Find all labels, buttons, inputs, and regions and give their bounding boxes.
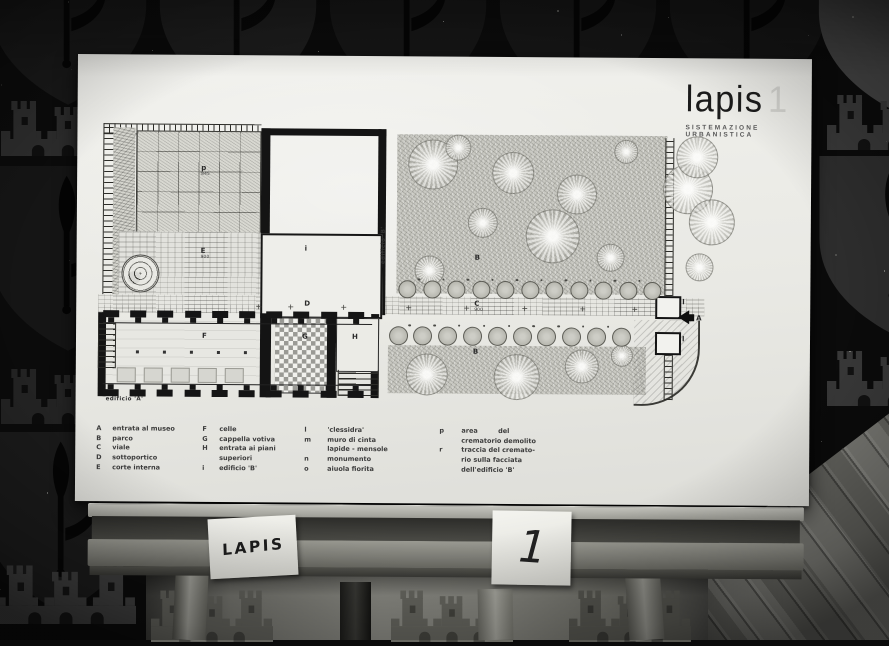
legend-text: aiuola fiorita	[327, 465, 414, 475]
flowerbed-dot	[607, 325, 609, 327]
survey-tick	[341, 305, 346, 310]
legend-column: parea del crematorio demolitortraccia de…	[439, 427, 549, 476]
lapis-card-text: LAPIS	[222, 535, 285, 560]
tree-icon	[643, 282, 661, 300]
legend-key: F	[202, 425, 207, 435]
legend-entry: mmuro di cinta lapide - mensole	[304, 435, 414, 455]
flowerbed-dot	[433, 324, 435, 326]
legend-text: celle	[219, 425, 312, 435]
plan-label-key: E	[201, 247, 206, 255]
tree-icon	[596, 244, 624, 272]
pilaster	[266, 390, 282, 397]
tree-icon	[438, 326, 457, 345]
wallpaper-castle-icon	[827, 344, 889, 406]
legend-entry: parea del crematorio demolito	[439, 427, 549, 447]
presentation-board: lapis1 SISTEMAZIONE URBANISTICA	[75, 54, 812, 506]
site-plan: edificio 'A' edificio 'B' p845E900iDFGHB…	[75, 54, 812, 506]
tree-icon	[689, 199, 735, 245]
pilaster	[321, 312, 337, 319]
legend-entry: rtraccia del cremato- rio sulla facciata…	[439, 446, 549, 476]
pilaster	[320, 391, 336, 398]
legend-key: o	[304, 464, 309, 474]
legend-key: D	[96, 453, 101, 463]
pilaster	[266, 311, 282, 318]
flowerbed-dot	[532, 325, 534, 327]
tree-icon	[521, 281, 539, 299]
legend-key: C	[96, 444, 101, 454]
plan-label-key: l	[682, 335, 684, 343]
tree-icon	[468, 208, 498, 238]
plan-label: F	[202, 333, 207, 340]
tree-icon	[565, 349, 599, 383]
tree-icon	[447, 281, 465, 299]
column-dot	[244, 351, 247, 354]
plan-label-elevation: 845	[201, 172, 210, 176]
tree-icon	[570, 281, 588, 299]
tree-icon	[398, 280, 416, 298]
speckle	[668, 17, 669, 18]
plan-wall-top	[261, 128, 386, 136]
legend-text: entrata al museo	[112, 424, 206, 434]
plan-label-key: i	[305, 245, 307, 253]
cell-door	[198, 368, 217, 383]
pilaster-row	[103, 383, 372, 398]
tree-icon	[413, 326, 432, 345]
legend-text: area del crematorio demolito	[461, 427, 549, 447]
pilaster-row	[103, 310, 372, 325]
plan-label: B	[473, 349, 478, 356]
plan-label: G	[302, 334, 308, 341]
tree-icon	[494, 354, 540, 400]
legend-key: E	[96, 463, 101, 473]
tree-icon	[562, 327, 581, 346]
legend-column: l'clessidra'mmuro di cinta lapide - mens…	[304, 426, 414, 475]
tree-icon	[612, 327, 631, 346]
tree-icon	[406, 353, 448, 395]
survey-tick	[464, 306, 469, 311]
easel-left-leg	[172, 569, 209, 641]
wallpaper-castle-icon	[827, 88, 889, 150]
easel-tray	[88, 500, 804, 582]
tree-icon	[685, 253, 713, 281]
edificio-b-caption: edificio 'B'	[381, 227, 387, 265]
legend-key: p	[439, 427, 444, 437]
legend-text: viale	[112, 444, 206, 454]
legend-key: i	[202, 464, 204, 474]
legend-key: l	[304, 426, 306, 436]
legend-text: edificio 'B'	[219, 464, 312, 474]
tree-icon	[492, 152, 534, 194]
plan-label: H	[352, 334, 358, 341]
plan-label-key: F	[202, 332, 207, 340]
tree-icon	[472, 281, 490, 299]
tree-icon	[463, 326, 482, 345]
plan-label: l	[682, 336, 684, 343]
tree-icon	[496, 281, 514, 299]
plan-clessidra-lower	[655, 332, 681, 355]
legend-column: Aentrata al museoBparcoCvialeDsottoporti…	[96, 424, 206, 473]
flowerbed-dot	[483, 324, 485, 326]
legend-text: sottoportico	[112, 453, 206, 463]
pilaster	[212, 311, 228, 318]
flowerbed-dot	[508, 325, 510, 327]
plan-label-key: B	[475, 254, 480, 262]
pilaster	[130, 389, 146, 396]
tree-icon	[614, 140, 638, 164]
speckle	[152, 50, 153, 51]
cell-door	[117, 367, 136, 382]
legend-text: corte interna	[112, 463, 206, 473]
tree-icon	[526, 209, 580, 263]
survey-tick	[256, 304, 261, 309]
tree-icon	[537, 327, 556, 346]
plan-crematorium-area	[136, 130, 262, 234]
legend-entry: iedificio 'B'	[202, 464, 312, 474]
wallpaper-shield-icon	[813, 156, 889, 338]
plan-label: p845	[201, 165, 210, 177]
speckle	[849, 351, 851, 353]
column-dot	[163, 351, 166, 354]
plan-room-h	[336, 318, 379, 372]
legend-entry: oaiuola fiorita	[304, 464, 414, 474]
plan-label-key: C	[474, 300, 479, 308]
legend-text: muro di cinta lapide - mensole	[327, 435, 414, 455]
plan-label-key: A	[696, 314, 701, 322]
easel-rear-post	[478, 589, 514, 641]
plan-room-i	[260, 233, 383, 319]
plan-label-key: H	[352, 333, 358, 341]
legend-text: cappella votiva	[219, 435, 312, 445]
legend-column: FcelleGcappella votivaHentrata ai piani …	[202, 425, 312, 474]
legend-key: A	[96, 424, 101, 434]
plan-label: E900	[201, 248, 210, 260]
flowerbed-dot	[458, 324, 460, 326]
cell-door	[225, 368, 244, 383]
plan-label-key: B	[473, 348, 478, 356]
plan-label: C900	[474, 301, 483, 313]
legend-key: r	[439, 446, 442, 456]
plan-label-key: D	[304, 300, 310, 308]
pilaster	[294, 312, 310, 319]
plan-label-elevation: 900	[201, 255, 210, 259]
plan-label: D	[304, 301, 310, 308]
plan-label: i	[305, 246, 307, 253]
pilaster	[347, 391, 363, 398]
tree-icon	[423, 280, 441, 298]
pilaster	[239, 390, 255, 397]
entrance-arrow-icon	[678, 310, 695, 324]
pilaster	[157, 390, 173, 397]
plan-cinta-wall-upper	[664, 138, 674, 296]
plan-label-key: l	[682, 298, 684, 306]
speckle	[443, 21, 444, 22]
legend-key: n	[304, 455, 309, 465]
plan-label-key: G	[302, 333, 308, 341]
plan-label: B	[475, 255, 480, 262]
pilaster	[130, 310, 146, 317]
legend-text: entrata ai piani superiori	[219, 444, 312, 464]
survey-tick	[580, 307, 585, 312]
pilaster	[184, 390, 200, 397]
flowerbed-dot	[408, 324, 410, 326]
plan-fountain-circle	[121, 254, 159, 292]
tree-icon	[557, 174, 597, 214]
speckle	[68, 1, 70, 3]
tree-icon	[611, 345, 633, 367]
cell-door	[171, 368, 190, 383]
plan-label-key: p	[201, 164, 206, 172]
legend-entry: Hentrata ai piani superiori	[202, 444, 312, 464]
lapis-card: LAPIS	[207, 515, 298, 580]
column-dot	[217, 351, 220, 354]
pilaster	[185, 311, 201, 318]
tree-icon	[388, 326, 407, 345]
survey-tick	[632, 307, 637, 312]
legend-text: monumento	[327, 455, 414, 465]
cell-door	[144, 367, 163, 382]
survey-tick	[288, 304, 293, 309]
pilaster	[103, 389, 119, 396]
plan-wall-west-b	[261, 128, 271, 238]
column-dot	[136, 350, 139, 353]
legend-key: m	[304, 435, 311, 445]
legend-key: G	[202, 435, 207, 445]
legend-text: traccia del cremato- rio sulla facciata …	[461, 446, 549, 476]
tree-icon	[587, 327, 606, 346]
edificio-a-caption: edificio 'A'	[106, 396, 144, 402]
legend-key: H	[202, 444, 208, 454]
tree-icon	[676, 136, 718, 178]
survey-tick	[522, 306, 527, 311]
legend-text: parco	[112, 434, 206, 444]
survey-tick	[406, 305, 411, 310]
plan-cinta-wall-lower	[664, 350, 673, 400]
pilaster	[158, 311, 174, 318]
pilaster	[293, 391, 309, 398]
flowerbed-dot	[582, 325, 584, 327]
pilaster	[103, 310, 119, 317]
legend-key: B	[96, 434, 101, 444]
tree-icon	[488, 326, 507, 345]
legend-entry: Ecorte interna	[96, 463, 206, 473]
number-card-text: 1	[512, 525, 551, 571]
flowerbed-dot	[557, 325, 559, 327]
column-dot	[190, 351, 193, 354]
plan-label: l	[682, 299, 684, 306]
plan-label-elevation: 900	[474, 308, 483, 312]
tree-icon	[594, 282, 612, 300]
pilaster	[211, 390, 227, 397]
pilaster	[239, 311, 255, 318]
number-card: 1	[491, 510, 571, 585]
plan-stairs-west	[98, 322, 116, 368]
pilaster	[348, 312, 364, 319]
tree-icon	[545, 281, 563, 299]
tree-icon	[619, 282, 637, 300]
easel-center-mast	[340, 582, 371, 640]
speckle	[835, 254, 837, 256]
tree-icon	[512, 327, 531, 346]
legend-text: 'clessidra'	[327, 426, 414, 436]
speckle	[821, 441, 823, 443]
plan-chapel-g	[275, 317, 328, 393]
plan-label: A	[696, 315, 701, 322]
tree-icon	[445, 135, 471, 161]
